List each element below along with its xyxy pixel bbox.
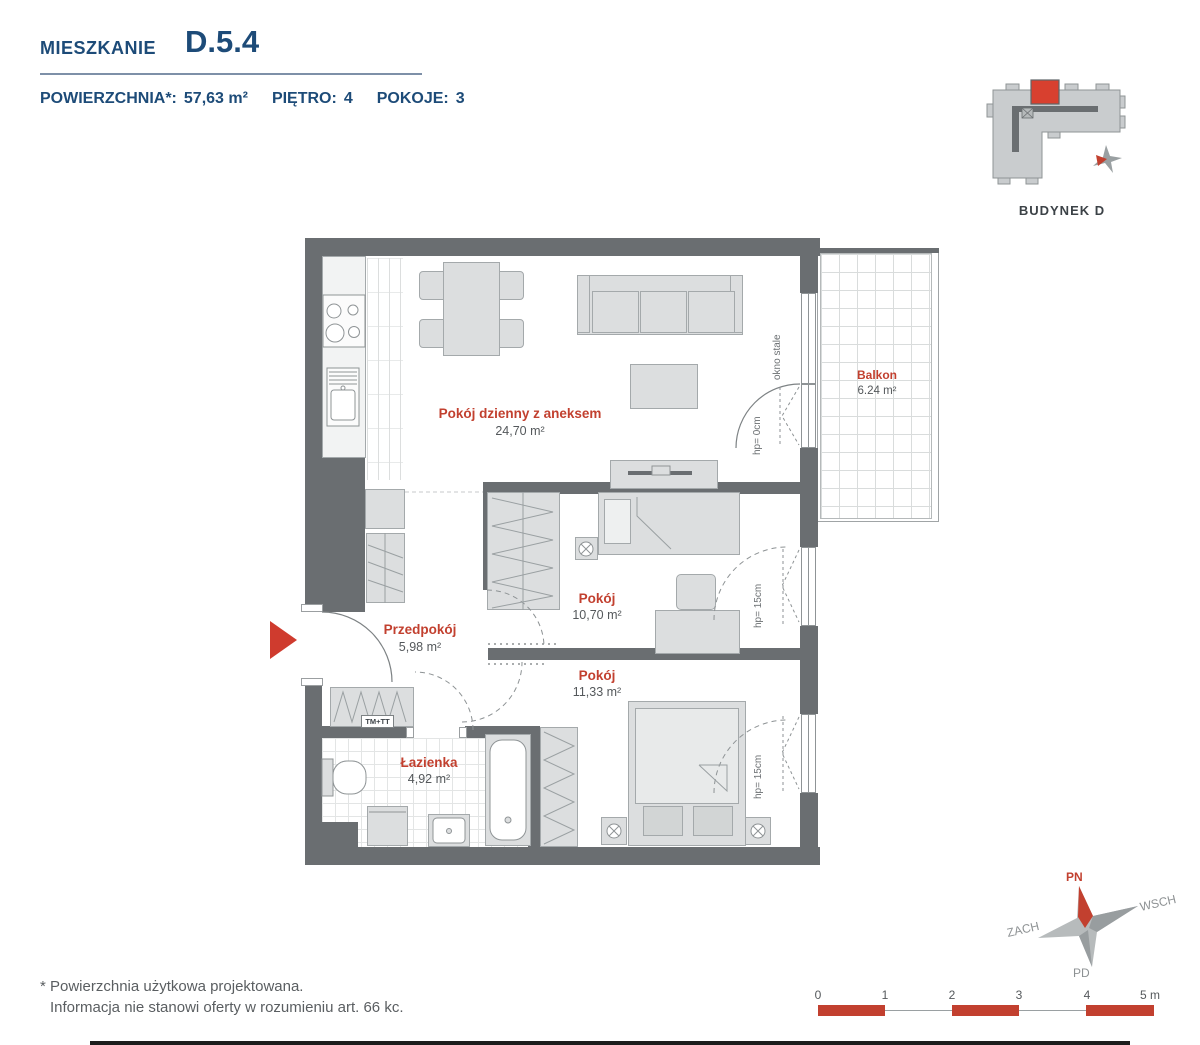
- sofa-cushion: [592, 291, 639, 333]
- bathtub: [485, 734, 531, 846]
- room2-pillow: [693, 806, 733, 836]
- compass-label-east: WSCH: [1139, 892, 1178, 914]
- scale-tick-0: 0: [815, 988, 822, 1002]
- wall-exterior-right-1: [800, 256, 818, 293]
- scale-tick-5: 5 m: [1140, 988, 1160, 1002]
- scale-bar-segment: [818, 1005, 885, 1016]
- area-label: POWIERZCHNIA*:: [40, 90, 177, 108]
- tv-screen: [628, 471, 692, 475]
- label-room1: Pokój: [579, 591, 616, 606]
- bathroom-jamb-right: [459, 727, 467, 738]
- label-hall: Przedpokój: [384, 622, 457, 637]
- area-room1: 10,70 m²: [572, 608, 621, 622]
- room1-desk-chair: [676, 574, 716, 610]
- sofa-cushion: [640, 291, 687, 333]
- scale-tick-4: 4: [1084, 988, 1091, 1002]
- label-bathroom: Łazienka: [400, 755, 457, 770]
- room2-mattress: [635, 708, 739, 804]
- room2-nightstand: [745, 817, 771, 845]
- entrance-arrow-icon: [270, 621, 297, 659]
- sofa-cushion: [688, 291, 735, 333]
- footnote: * Powierzchnia użytkowa projektowana. In…: [40, 976, 403, 1018]
- building-outline: [987, 84, 1125, 184]
- annotation-window-sill-height-room1: hp= 15cm: [753, 584, 764, 628]
- window-room1: [801, 547, 816, 626]
- balcony-top-edge: [817, 248, 939, 253]
- floor-value: 4: [344, 90, 353, 108]
- compass-label-west: ZACH: [1006, 919, 1041, 940]
- building-corridor: [1012, 106, 1098, 152]
- wall-exterior-top: [305, 238, 820, 256]
- wall-exterior-bottom: [305, 847, 820, 865]
- window-living-balcony: [801, 293, 816, 448]
- wall-exterior-right-4: [800, 793, 818, 847]
- apartment-location-highlight: [1031, 80, 1059, 104]
- area-bathroom: 4,92 m²: [408, 772, 450, 786]
- kitchen-cabinet: [365, 489, 405, 529]
- compass-north-needle: [1078, 886, 1093, 928]
- apartment-unit-id: D.5.4: [185, 24, 259, 60]
- bathroom-sink: [428, 814, 470, 847]
- scale-tick-3: 3: [1016, 988, 1023, 1002]
- building-name: BUDYNEK D: [1019, 203, 1105, 218]
- area-value: 57,63 m²: [184, 90, 248, 108]
- dining-table: [443, 262, 500, 356]
- floorplan-page: MIESZKANIE D.5.4 POWIERZCHNIA*: 57,63 m²…: [0, 0, 1200, 1045]
- room1-nightstand: [575, 537, 598, 560]
- building-letter: D: [1095, 203, 1105, 218]
- compass-rose: PN WSCH ZACH PD: [1005, 855, 1190, 985]
- area-living-room: 24,70 m²: [495, 424, 544, 438]
- room2-wardrobe: [540, 727, 578, 847]
- area-hall: 5,98 m²: [399, 640, 441, 654]
- hall-wardrobe-upper: [366, 533, 405, 603]
- wall-corner-step: [318, 822, 358, 847]
- window-glass-line: [808, 715, 809, 792]
- building-stairwell: [1022, 108, 1033, 118]
- wall-structural-block: [305, 458, 365, 612]
- annotation-window-sill-height-room2: hp= 15cm: [753, 755, 764, 799]
- balcony-door-opening-symbol: [782, 387, 799, 445]
- label-balcony: Balkon: [857, 368, 897, 382]
- sofa-armrest: [577, 275, 590, 333]
- scale-bar-segment: [952, 1005, 1019, 1016]
- annotation-door-sill-height: hp= 0cm: [752, 416, 763, 455]
- wall-exterior-right-2: [800, 448, 818, 547]
- bathroom-jamb-left: [406, 727, 414, 738]
- window-glass-line: [808, 548, 809, 625]
- window-room2: [801, 714, 816, 793]
- page-bottom-edge: [90, 1041, 1130, 1045]
- room2-door-swing: [462, 662, 522, 722]
- entrance-jamb-bottom: [301, 678, 323, 686]
- floor-label: PIĘTRO:: [272, 90, 337, 108]
- bathroom-door-swing: [415, 672, 473, 730]
- kitchen-floor-tiles: [367, 258, 403, 480]
- scale-tick-2: 2: [949, 988, 956, 1002]
- footnote-line1: * Powierzchnia użytkowa projektowana.: [40, 976, 403, 997]
- room1-window-opening-symbol: [782, 550, 799, 622]
- room1-desk: [655, 610, 740, 654]
- rooms-value: 3: [456, 90, 465, 108]
- footnote-line2: Informacja nie stanowi oferty w rozumien…: [50, 997, 403, 1018]
- compass-label-south: PD: [1073, 966, 1090, 980]
- scale-tick-1: 1: [882, 988, 889, 1002]
- header-divider: [40, 73, 422, 75]
- label-living-room: Pokój dzienny z aneksem: [439, 406, 602, 421]
- label-room2: Pokój: [579, 668, 616, 683]
- compass-star-shadow: [1089, 906, 1138, 932]
- wall-room1-room2-divider: [488, 648, 800, 660]
- compass-star-shadow2: [1079, 930, 1092, 967]
- entrance-door-swing: [322, 612, 392, 682]
- meter-cabinet-label: TM+TT: [361, 715, 394, 728]
- kitchen-counter: [322, 256, 366, 458]
- entrance-jamb-top: [301, 604, 323, 612]
- compass-label-north: PN: [1066, 870, 1083, 884]
- mini-compass-icon: [1093, 145, 1122, 173]
- room1-pillow: [604, 499, 631, 544]
- area-balcony: 6.24 m²: [858, 385, 897, 397]
- wall-exterior-right-3: [800, 626, 818, 714]
- area-room2: 11,33 m²: [573, 685, 621, 699]
- room2-pillow: [643, 806, 683, 836]
- coffee-table: [630, 364, 698, 409]
- window-sash-divider: [802, 383, 815, 385]
- room2-nightstand: [601, 817, 627, 845]
- annotation-fixed-window: okno stale: [772, 334, 783, 380]
- window-glass-line: [808, 294, 809, 447]
- room1-wardrobe: [487, 492, 560, 610]
- apartment-specs: POWIERZCHNIA*: 57,63 m² PIĘTRO: 4 POKOJE…: [40, 90, 465, 108]
- apartment-type-label: MIESZKANIE: [40, 38, 156, 59]
- compass-star: [1038, 886, 1138, 967]
- building-name-text: BUDYNEK: [1019, 203, 1090, 218]
- scale-bar-segment: [1086, 1005, 1154, 1016]
- balcony-door-swing: [736, 384, 800, 448]
- rooms-label: POKOJE:: [377, 90, 449, 108]
- washing-machine: [367, 806, 408, 846]
- building-locator-map: [975, 55, 1135, 215]
- room2-window-opening-symbol: [782, 717, 799, 789]
